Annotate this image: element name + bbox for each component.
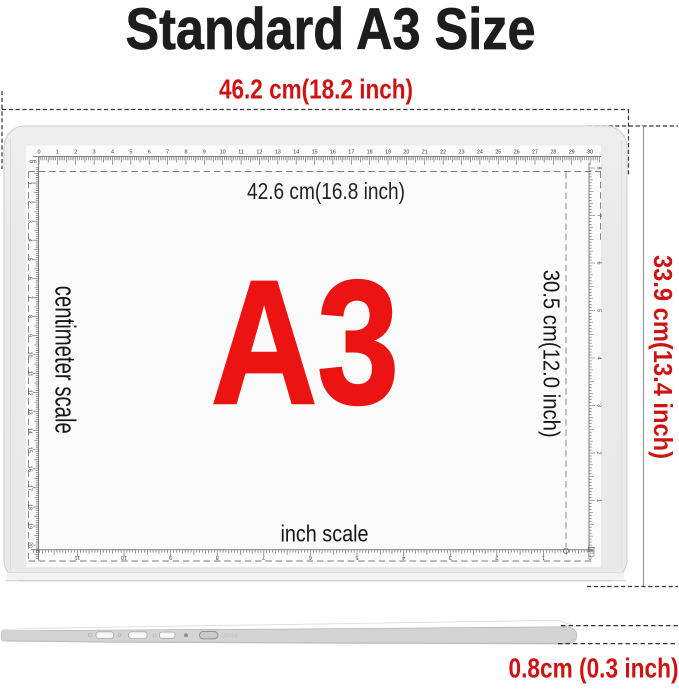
svg-text:30: 30: [587, 150, 593, 156]
svg-text:30.5 cm(12.0 inch): 30.5 cm(12.0 inch): [538, 270, 564, 438]
svg-text:8: 8: [27, 315, 33, 318]
svg-text:0.8cm (0.3 inch): 0.8cm (0.3 inch): [509, 653, 679, 684]
svg-text:4: 4: [402, 554, 405, 560]
svg-text:2: 2: [27, 201, 33, 204]
svg-text:10: 10: [121, 554, 127, 560]
svg-text:6: 6: [148, 150, 151, 156]
svg-text:9: 9: [203, 150, 206, 156]
svg-text:19: 19: [27, 523, 33, 529]
svg-text:1: 1: [542, 554, 545, 560]
svg-text:10: 10: [27, 352, 33, 358]
svg-text:6: 6: [596, 262, 602, 265]
svg-text:33.9 cm(13.4 inch): 33.9 cm(13.4 inch): [648, 255, 678, 459]
svg-text:20: 20: [27, 542, 33, 548]
svg-text:20: 20: [403, 150, 409, 156]
svg-text:22: 22: [440, 150, 446, 156]
svg-text:7: 7: [596, 214, 602, 217]
svg-text:23: 23: [459, 150, 465, 156]
svg-text:4: 4: [27, 239, 33, 242]
svg-text:10: 10: [220, 150, 226, 156]
svg-text:6: 6: [27, 277, 33, 280]
svg-text:18: 18: [367, 150, 373, 156]
svg-text:3: 3: [596, 404, 602, 407]
svg-text:5: 5: [356, 554, 359, 560]
svg-text:5: 5: [27, 258, 33, 261]
svg-text:1: 1: [56, 150, 59, 156]
svg-text:16: 16: [27, 466, 33, 472]
svg-text:A3: A3: [211, 245, 399, 441]
svg-text:9: 9: [27, 334, 33, 337]
svg-text:4: 4: [596, 357, 602, 360]
svg-text:11: 11: [238, 150, 244, 156]
svg-text:inch scale: inch scale: [281, 521, 369, 547]
svg-text:15: 15: [27, 447, 33, 453]
svg-text:5: 5: [129, 150, 132, 156]
svg-text:46.2 cm(18.2 inch): 46.2 cm(18.2 inch): [219, 74, 413, 105]
svg-text:42.6 cm(16.8 inch): 42.6 cm(16.8 inch): [247, 178, 405, 204]
svg-text:3: 3: [93, 150, 96, 156]
svg-text:28: 28: [550, 150, 556, 156]
svg-text:centimeter scale: centimeter scale: [49, 286, 81, 434]
svg-text:15: 15: [312, 150, 318, 156]
svg-text:0: 0: [589, 554, 592, 560]
svg-text:4: 4: [111, 150, 114, 156]
svg-text:11: 11: [27, 371, 33, 377]
svg-text:2: 2: [495, 554, 498, 560]
svg-text:29: 29: [569, 150, 575, 156]
svg-text:Standard A3 Size: Standard A3 Size: [126, 0, 536, 62]
svg-text:12: 12: [256, 150, 262, 156]
svg-text:8: 8: [216, 554, 219, 560]
svg-text:1: 1: [596, 499, 602, 502]
svg-text:19: 19: [385, 150, 391, 156]
svg-text:14: 14: [293, 150, 299, 156]
svg-text:in: in: [590, 550, 595, 554]
svg-text:9: 9: [169, 554, 172, 560]
svg-text:13: 13: [27, 409, 33, 415]
svg-text:0: 0: [38, 150, 41, 156]
svg-text:2: 2: [596, 452, 602, 455]
svg-text:8: 8: [185, 150, 188, 156]
svg-text:14: 14: [27, 428, 33, 434]
svg-text:3: 3: [449, 554, 452, 560]
svg-text:11: 11: [75, 554, 81, 560]
svg-text:1: 1: [27, 182, 33, 185]
svg-text:7: 7: [262, 554, 265, 560]
svg-text:17: 17: [348, 150, 354, 156]
svg-text:18: 18: [27, 504, 33, 510]
svg-text:cm: cm: [29, 159, 37, 165]
svg-text:12: 12: [27, 390, 33, 396]
svg-text:5V=2A: 5V=2A: [222, 633, 238, 639]
svg-text:25: 25: [495, 150, 501, 156]
svg-text:17: 17: [27, 485, 33, 491]
svg-text:8: 8: [596, 167, 602, 170]
svg-text:21: 21: [422, 150, 428, 156]
svg-text:5: 5: [596, 309, 602, 312]
svg-text:7: 7: [27, 296, 33, 299]
svg-text:6: 6: [309, 554, 312, 560]
svg-text:7: 7: [166, 150, 169, 156]
svg-text:13: 13: [275, 150, 281, 156]
svg-text:24: 24: [477, 150, 483, 156]
svg-text:27: 27: [532, 150, 538, 156]
svg-text:26: 26: [514, 150, 520, 156]
svg-text:2: 2: [74, 150, 77, 156]
svg-text:3: 3: [27, 220, 33, 223]
svg-text:16: 16: [330, 150, 336, 156]
